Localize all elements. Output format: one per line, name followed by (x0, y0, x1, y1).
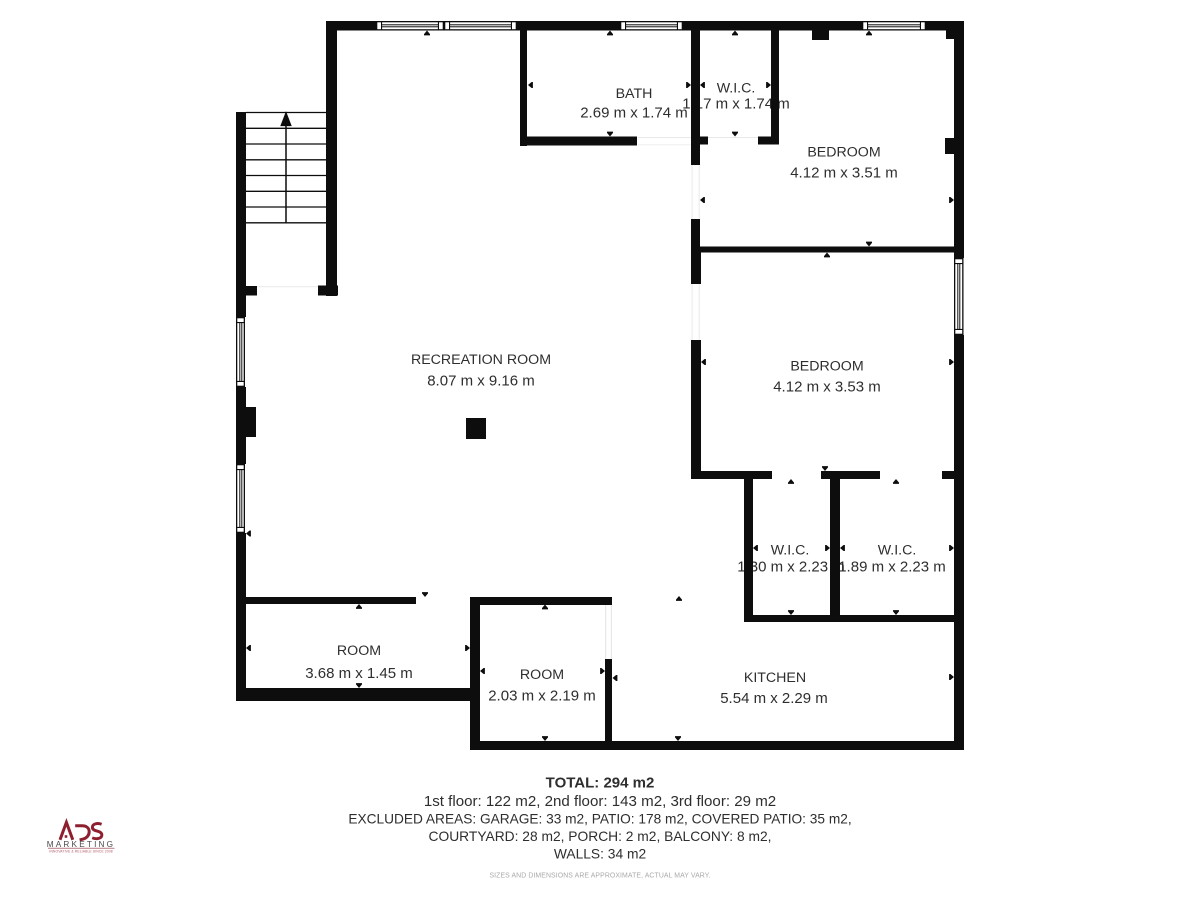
svg-text:BATH: BATH (616, 86, 653, 102)
svg-text:KITCHEN: KITCHEN (744, 670, 806, 686)
svg-text:ROOM: ROOM (337, 643, 381, 659)
svg-text:MARKETING: MARKETING (47, 840, 115, 849)
svg-text:WALLS: 34 m2: WALLS: 34 m2 (554, 847, 646, 862)
svg-text:SIZES AND DIMENSIONS ARE APPRO: SIZES AND DIMENSIONS ARE APPROXIMATE, AC… (489, 873, 710, 880)
svg-text:8.07 m x 9.16 m: 8.07 m x 9.16 m (427, 373, 535, 390)
svg-text:W.I.C.: W.I.C. (717, 81, 756, 97)
svg-text:3.68 m x 1.45 m: 3.68 m x 1.45 m (305, 665, 413, 682)
svg-text:2.03 m x 2.19 m: 2.03 m x 2.19 m (488, 688, 596, 705)
svg-text:4.12 m x 3.51 m: 4.12 m x 3.51 m (790, 165, 898, 182)
svg-text:INNOVATIVE & RELIABLE SINCE 20: INNOVATIVE & RELIABLE SINCE 2008 (49, 850, 112, 854)
svg-text:1st floor: 122 m2, 2nd floor:: 1st floor: 122 m2, 2nd floor: 143 m2, 3r… (424, 793, 776, 810)
svg-text:TOTAL: 294 m2: TOTAL: 294 m2 (546, 775, 655, 792)
svg-text:5.54 m x 2.29 m: 5.54 m x 2.29 m (720, 690, 828, 707)
svg-text:W.I.C.: W.I.C. (771, 543, 810, 559)
svg-text:RECREATION ROOM: RECREATION ROOM (411, 352, 551, 368)
svg-text:W.I.C.: W.I.C. (878, 543, 917, 559)
svg-text:EXCLUDED AREAS: GARAGE: 33 m2,: EXCLUDED AREAS: GARAGE: 33 m2, PATIO: 17… (348, 812, 851, 827)
svg-text:4.12 m x 3.53 m: 4.12 m x 3.53 m (773, 379, 881, 396)
svg-text:1.89 m x 2.23 m: 1.89 m x 2.23 m (838, 559, 946, 576)
svg-text:ROOM: ROOM (520, 667, 564, 683)
svg-text:BEDROOM: BEDROOM (807, 145, 880, 161)
svg-text:BEDROOM: BEDROOM (790, 359, 863, 375)
svg-text:COURTYARD: 28 m2, PORCH: 2 m2,: COURTYARD: 28 m2, PORCH: 2 m2, BALCONY: … (429, 829, 772, 844)
svg-text:2.69 m x 1.74 m: 2.69 m x 1.74 m (580, 105, 688, 122)
svg-text:1.30 m x 2.23 m: 1.30 m x 2.23 m (737, 559, 845, 576)
